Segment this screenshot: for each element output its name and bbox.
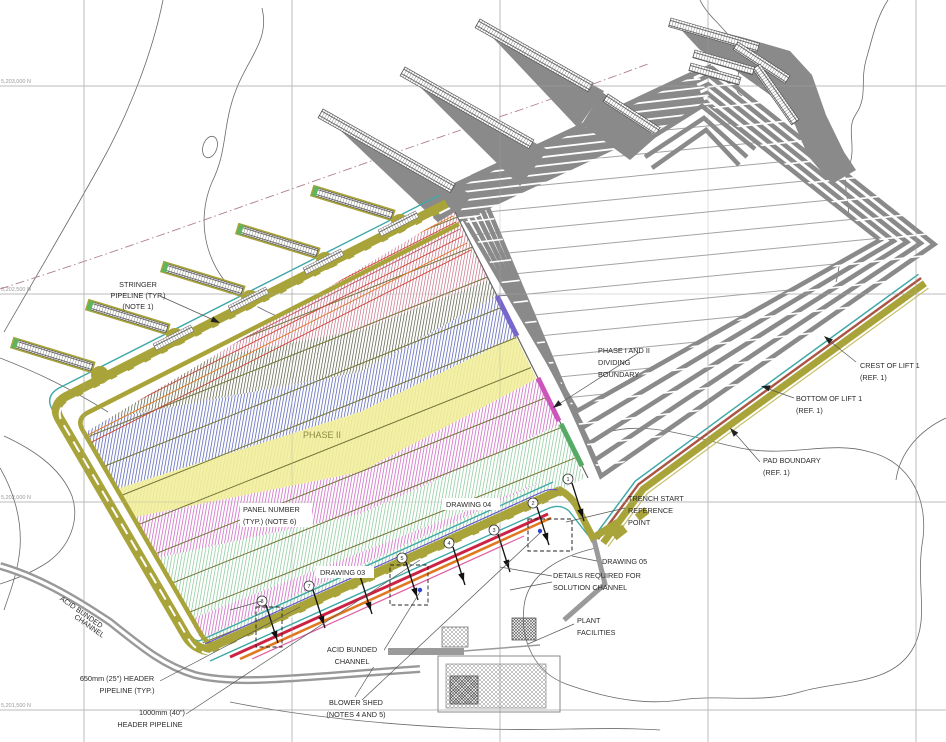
svg-text:(REF. 1): (REF. 1) [860, 373, 887, 382]
svg-text:PIPELINE (TYP.): PIPELINE (TYP.) [110, 291, 165, 300]
svg-text:5,203,000 N: 5,203,000 N [1, 79, 31, 85]
svg-text:STRINGER: STRINGER [119, 280, 157, 289]
svg-text:5,201,500 N: 5,201,500 N [1, 703, 31, 709]
svg-text:(REF. 1): (REF. 1) [763, 468, 790, 477]
svg-text:SOLUTION CHANNEL: SOLUTION CHANNEL [553, 583, 627, 592]
svg-text:5: 5 [400, 556, 403, 562]
svg-text:PANEL NUMBER: PANEL NUMBER [243, 505, 300, 514]
svg-text:FACILITIES: FACILITIES [577, 628, 616, 637]
svg-text:BLOWER SHED: BLOWER SHED [329, 698, 383, 707]
svg-text:CHANNEL: CHANNEL [335, 657, 370, 666]
svg-text:1000mm (40"): 1000mm (40") [139, 708, 185, 717]
svg-text:(REF. 1): (REF. 1) [796, 406, 823, 415]
svg-text:4: 4 [447, 541, 450, 547]
svg-text:CREST OF LIFT 1: CREST OF LIFT 1 [860, 361, 920, 370]
svg-text:8: 8 [260, 599, 263, 605]
svg-text:BOUNDARY: BOUNDARY [598, 370, 639, 379]
svg-text:5,202,000 N: 5,202,000 N [1, 495, 31, 501]
svg-text:PAD BOUNDARY: PAD BOUNDARY [763, 456, 821, 465]
svg-text:PHASE II: PHASE II [303, 430, 341, 440]
svg-text:DIVIDING: DIVIDING [598, 358, 631, 367]
svg-text:ACID BUNDED: ACID BUNDED [327, 645, 377, 654]
svg-text:5,202,500 N: 5,202,500 N [1, 287, 31, 293]
svg-text:TRENCH START: TRENCH START [628, 494, 684, 503]
svg-text:1: 1 [566, 477, 569, 483]
svg-text:3: 3 [492, 528, 495, 534]
svg-text:PHASE I AND II: PHASE I AND II [598, 346, 650, 355]
svg-text:(TYP.) (NOTE 6): (TYP.) (NOTE 6) [243, 517, 296, 526]
svg-text:7: 7 [307, 584, 310, 590]
svg-text:REFERENCE: REFERENCE [628, 506, 673, 515]
svg-text:HEADER PIPELINE: HEADER PIPELINE [117, 720, 182, 729]
svg-text:(NOTE 1): (NOTE 1) [122, 302, 153, 311]
svg-text:BOTTOM OF LIFT 1: BOTTOM OF LIFT 1 [796, 394, 862, 403]
svg-text:PLANT: PLANT [577, 616, 601, 625]
svg-text:POINT: POINT [628, 518, 651, 527]
svg-text:PIPELINE (TYP.): PIPELINE (TYP.) [99, 686, 154, 695]
svg-text:DRAWING 03: DRAWING 03 [320, 568, 365, 577]
svg-text:(NOTES 4 AND 5): (NOTES 4 AND 5) [326, 710, 385, 719]
svg-text:DRAWING 04: DRAWING 04 [446, 500, 491, 509]
svg-text:DRAWING 05: DRAWING 05 [602, 557, 647, 566]
svg-text:650mm (25") HEADER: 650mm (25") HEADER [80, 674, 154, 683]
svg-text:DETAILS REQUIRED FOR: DETAILS REQUIRED FOR [553, 571, 641, 580]
